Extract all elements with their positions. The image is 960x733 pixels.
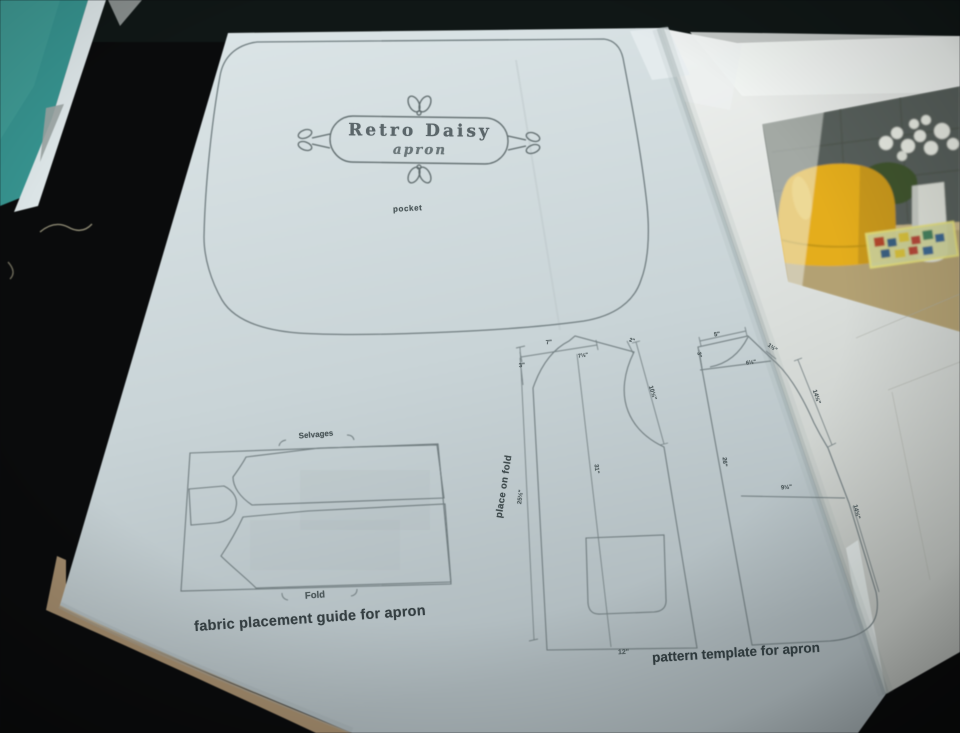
photographed-pattern-book-scene: Retro Daisy apron pocket Selvages Fold f… bbox=[0, 0, 960, 733]
measurement-label: 5" bbox=[714, 332, 721, 339]
pattern-title: Retro Daisy bbox=[331, 120, 509, 142]
measurement-label: 9½" bbox=[781, 485, 793, 492]
measurement-label: 2" bbox=[628, 337, 635, 344]
pocket-piece-label: pocket bbox=[393, 203, 423, 214]
measurement-label: 12" bbox=[618, 649, 629, 657]
camera-vignette bbox=[0, 0, 960, 733]
pattern-subtitle: apron bbox=[331, 141, 509, 159]
measurement-label: 3" bbox=[519, 363, 526, 370]
measurement-label: 7" bbox=[546, 340, 553, 347]
measurement-label: 3" bbox=[695, 352, 702, 359]
scene-artwork bbox=[0, 0, 960, 733]
